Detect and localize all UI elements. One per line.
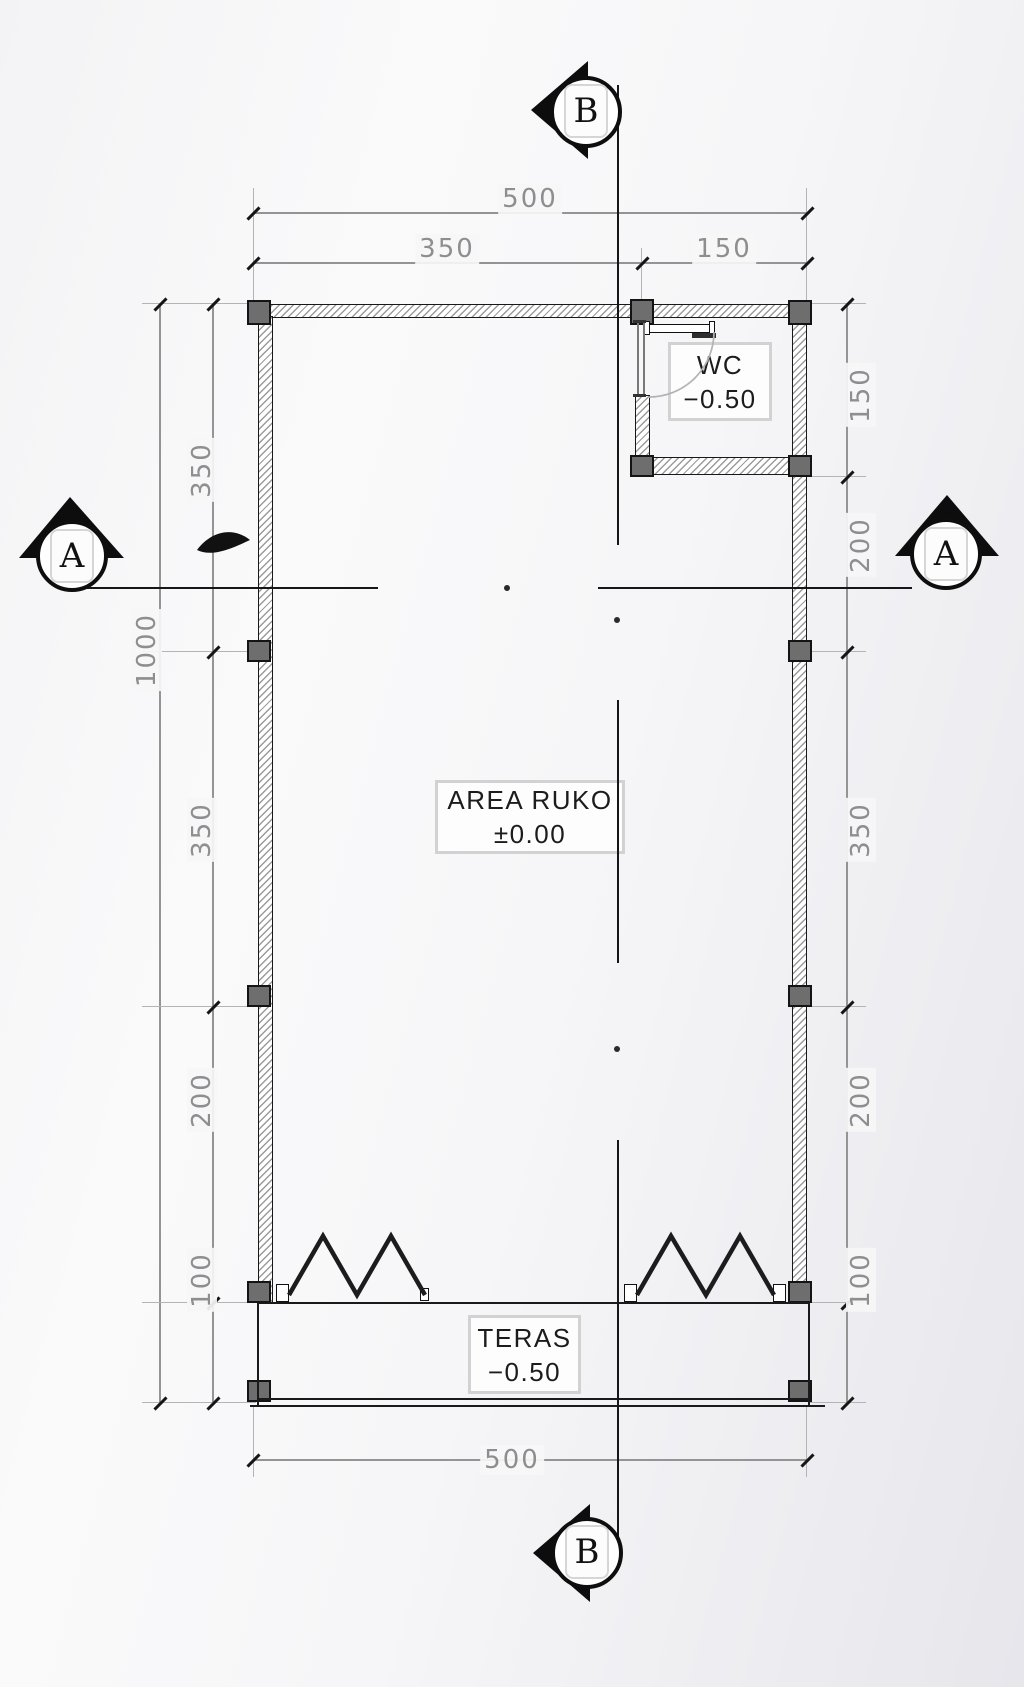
section-line-b	[617, 1140, 619, 1542]
section-arrow-swoosh	[197, 532, 250, 553]
section-marker-b-top: B	[525, 56, 637, 166]
section-line-dot	[614, 1046, 620, 1052]
marker-letter-box: A	[50, 529, 94, 583]
section-line-b	[617, 700, 619, 963]
section-marker-b-bottom: B	[527, 1500, 639, 1610]
marker-letter: B	[574, 94, 599, 128]
marker-letter-box: B	[565, 1525, 609, 1579]
section-line-dot	[504, 585, 510, 591]
section-line-a	[598, 587, 912, 589]
section-marker-a-right: A	[890, 490, 1002, 594]
wc-door-swing-arc	[649, 332, 714, 397]
folding-door-right	[637, 1236, 774, 1295]
marker-letter: A	[934, 537, 959, 571]
marker-letter-box: B	[564, 84, 608, 138]
folding-door-left	[289, 1236, 425, 1295]
floor-plan-canvas: 500 350 150 500 1000 350 350 200 100 150…	[0, 0, 1024, 1687]
section-line-dot	[614, 617, 620, 623]
marker-letter: B	[575, 1535, 600, 1569]
plan-overlay	[0, 0, 1024, 1687]
marker-letter: A	[60, 539, 85, 573]
section-marker-a-left: A	[14, 492, 126, 596]
marker-letter-box: A	[924, 527, 968, 581]
section-line-a	[85, 587, 378, 589]
